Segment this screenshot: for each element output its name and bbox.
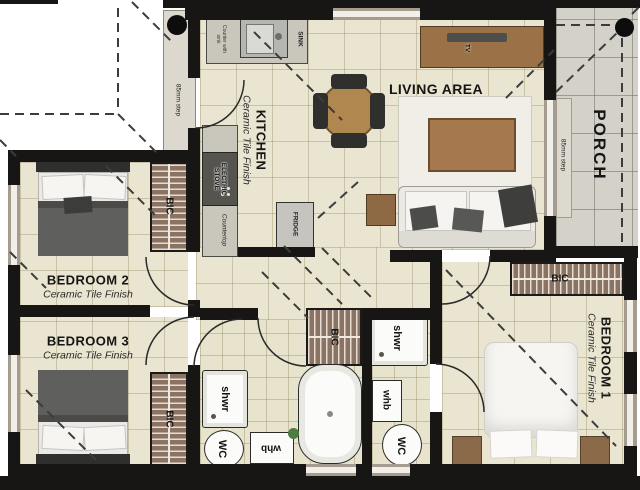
wc-label: WC [216,440,228,458]
door-swing-arcs [146,80,490,412]
step-label: 85mm step [560,139,567,171]
floor-plan: KITCHEN Ceramic Tile Finish LIVING AREA … [0,0,640,490]
bic-label: BIC [164,197,175,214]
room-finish: Ceramic Tile Finish [586,313,598,403]
bedroom3-label: BEDROOM 3 Ceramic Tile Finish [43,335,133,362]
counter-note-label: Counter with sink [215,22,227,56]
room-name: LIVING AREA [389,81,483,97]
bic-label: BIC [329,328,340,345]
electric-stove-label: ELECTRIC STOVE [213,158,227,200]
shower-label: shwr [219,386,231,412]
sink-label: SINK [297,31,304,47]
room-name: KITCHEN [253,95,268,185]
porch-label: PORCH [589,109,609,180]
kitchen-label: KITCHEN Ceramic Tile Finish [241,95,268,185]
shower-label: shwr [391,325,403,351]
whb-label: whb [381,390,392,410]
step-label: 85mm step [175,84,182,116]
tv-label: TV [464,44,471,52]
room-name: BEDROOM 3 [43,335,133,350]
bic-label: BIC [551,274,568,285]
room-name: BEDROOM 1 [598,313,613,403]
room-finish: Ceramic Tile Finish [43,288,133,300]
living-area-label: LIVING AREA [389,81,483,97]
plan-linework [0,0,640,490]
bedroom1-label: BEDROOM 1 Ceramic Tile Finish [586,313,613,403]
room-finish: Ceramic Tile Finish [43,349,133,361]
countertop-label: Countertop [221,214,228,246]
roof-overhang-dashes [0,2,640,460]
room-name: BEDROOM 2 [43,274,133,289]
whb-label: whb [261,443,281,454]
bedroom2-label: BEDROOM 2 Ceramic Tile Finish [43,274,133,301]
wc-label: WC [395,437,407,455]
fridge-label: FRIDGE [292,212,299,237]
bic-label: BIC [164,410,175,427]
room-finish: Ceramic Tile Finish [241,95,253,185]
